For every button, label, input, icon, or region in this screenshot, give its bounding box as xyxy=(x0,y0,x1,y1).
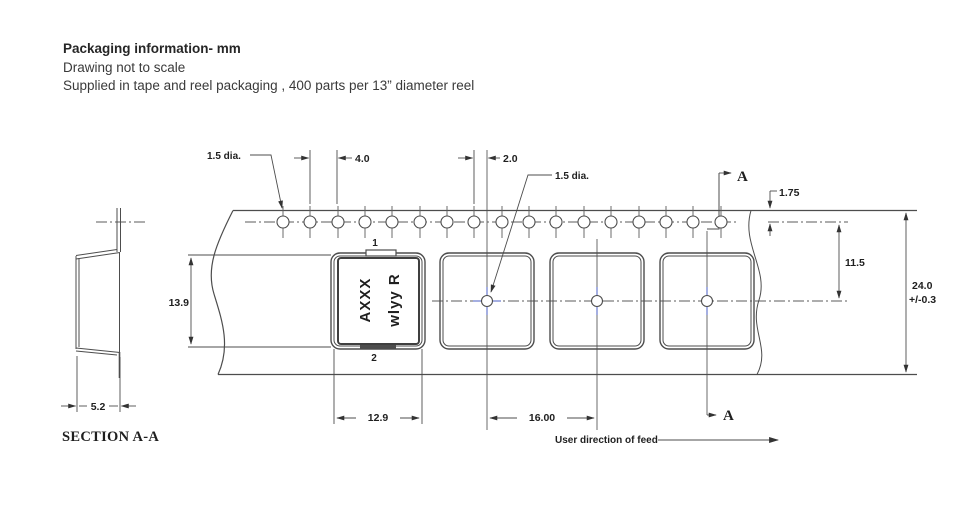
section-view xyxy=(61,208,136,412)
pocket-centerlines xyxy=(487,150,719,430)
dim-pocket-depth: 5.2 xyxy=(91,401,106,413)
feed-direction-label: User direction of feed xyxy=(555,435,658,446)
dim-tape-width-tol: +/-0.3 xyxy=(909,294,936,306)
dim-edge-to-hole: 1.75 xyxy=(779,187,800,199)
section-marker-top: A xyxy=(737,169,748,185)
dim-center-hole-dia: 1.5 dia. xyxy=(555,171,589,182)
section-label: SECTION A-A xyxy=(62,429,159,445)
pin1-label: 1 xyxy=(372,238,378,249)
packaging-drawing-page: Packaging information- mm Drawing not to… xyxy=(0,0,970,514)
dim-hole-to-pocket: 2.0 xyxy=(503,153,518,165)
tape-outline xyxy=(211,211,917,375)
part-marking-line1: AXXX xyxy=(357,278,374,323)
part-marking-line2: wlyy R xyxy=(386,273,403,328)
section-marker-bottom: A xyxy=(723,408,734,424)
dim-tape-width: 24.0 xyxy=(912,280,933,292)
packaged-part: AXXX wlyy R xyxy=(338,250,419,350)
dim-pocket-height: 13.9 xyxy=(169,297,190,309)
tape-and-reel-drawing: AXXX wlyy R xyxy=(0,0,970,514)
pin2-notch xyxy=(360,345,396,350)
dim-pocket-pitch: 16.00 xyxy=(529,412,555,424)
dim-hole-dia-left: 1.5 dia. xyxy=(207,151,241,162)
centerlines xyxy=(96,222,848,301)
dim-hole-pitch: 4.0 xyxy=(355,153,370,165)
dim-hole-to-center: 11.5 xyxy=(845,257,865,269)
pin1-notch xyxy=(366,250,396,256)
pin2-label: 2 xyxy=(371,353,377,364)
dim-pocket-width: 12.9 xyxy=(368,412,389,424)
